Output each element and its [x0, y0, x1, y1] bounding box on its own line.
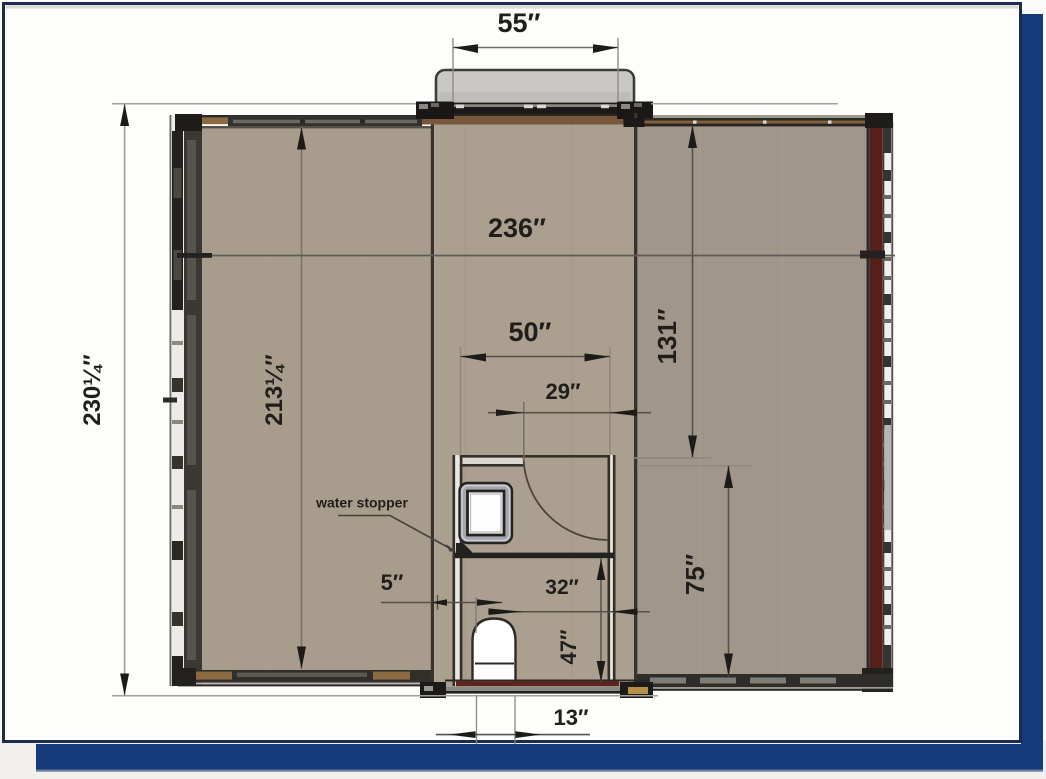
svg-text:75″: 75″: [680, 554, 710, 595]
svg-text:131″: 131″: [652, 309, 682, 365]
svg-text:13″: 13″: [553, 705, 588, 730]
svg-text:50″: 50″: [509, 317, 552, 347]
svg-text:32″: 32″: [545, 576, 578, 599]
svg-text:29″: 29″: [545, 379, 580, 404]
svg-text:5″: 5″: [381, 570, 404, 595]
svg-text:water stopper: water stopper: [315, 495, 408, 511]
svg-text:213¼″: 213¼″: [261, 354, 288, 426]
svg-text:55″: 55″: [498, 8, 541, 38]
svg-text:230¼″: 230¼″: [79, 354, 106, 426]
svg-text:236″: 236″: [488, 213, 546, 243]
svg-text:47″: 47″: [556, 629, 581, 664]
